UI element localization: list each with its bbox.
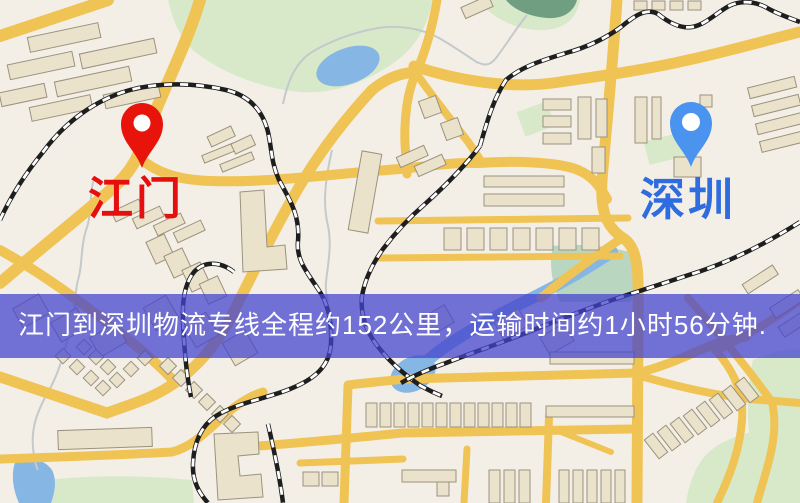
route-info-banner: 江门到深圳物流专线全程约152公里，运输时间约1小时56分钟. — [0, 294, 800, 358]
destination-city-label: 深圳 — [640, 177, 736, 222]
origin-city-label: 江门 — [88, 176, 184, 221]
location-pin-icon — [668, 100, 714, 168]
origin-marker[interactable] — [119, 101, 165, 169]
destination-marker[interactable] — [668, 100, 714, 168]
map-screenshot: 江门 深圳 江门到深圳物流专线全程约152公里，运输时间约1小时56分钟. — [0, 0, 800, 503]
map-canvas[interactable] — [0, 0, 800, 503]
route-info-text: 江门到深圳物流专线全程约152公里，运输时间约1小时56分钟. — [18, 305, 767, 342]
location-pin-icon — [119, 101, 165, 169]
